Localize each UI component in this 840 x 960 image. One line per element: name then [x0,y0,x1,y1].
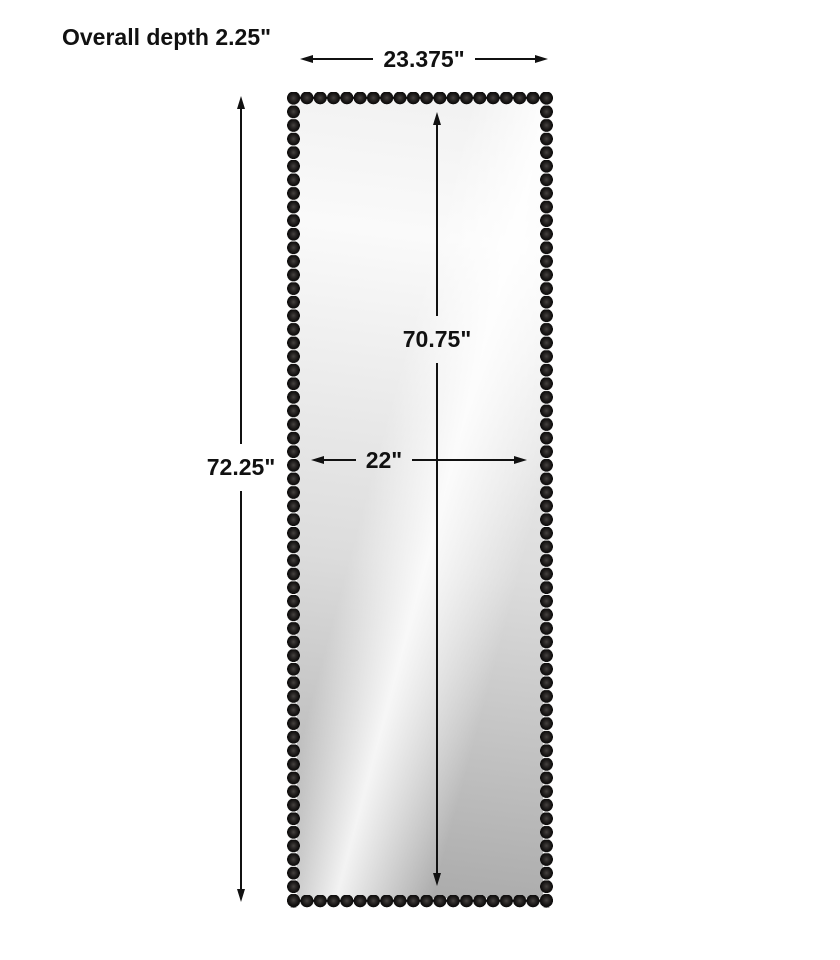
overall-width-label: 23.375" [373,48,474,71]
arrow-up-icon [433,112,441,125]
bead-row-top [287,92,553,105]
arrow-down-icon [237,889,245,902]
overall-width-dimension: 23.375" [300,47,548,71]
mirror-height-dimension: 70.75" [392,112,482,886]
bead-column-right [540,92,553,908]
dimension-line [240,491,242,889]
overall-height-dimension: 72.25" [202,96,280,902]
arrow-right-icon [535,55,548,63]
mirror-height-label: 70.75" [403,316,471,363]
bead-row-bottom [287,895,553,908]
arrow-left-icon [300,55,313,63]
dimension-line [436,363,438,873]
overall-depth-label: Overall depth 2.25" [62,26,271,49]
dimension-line [313,58,373,60]
mirror-width-label: 22" [356,449,413,472]
product-dimension-diagram: Overall depth 2.25" 23.375" 72.25" 70.75… [0,0,840,960]
dimension-line [475,58,535,60]
dimension-line [240,109,242,444]
bead-column-left [287,92,300,908]
arrow-up-icon [237,96,245,109]
dimension-line [436,125,438,316]
arrow-left-icon [311,456,324,464]
mirror-width-dimension: 22" [311,448,527,472]
arrow-right-icon [514,456,527,464]
dimension-line [412,459,514,461]
dimension-line [324,459,356,461]
overall-height-label: 72.25" [207,444,275,491]
arrow-down-icon [433,873,441,886]
